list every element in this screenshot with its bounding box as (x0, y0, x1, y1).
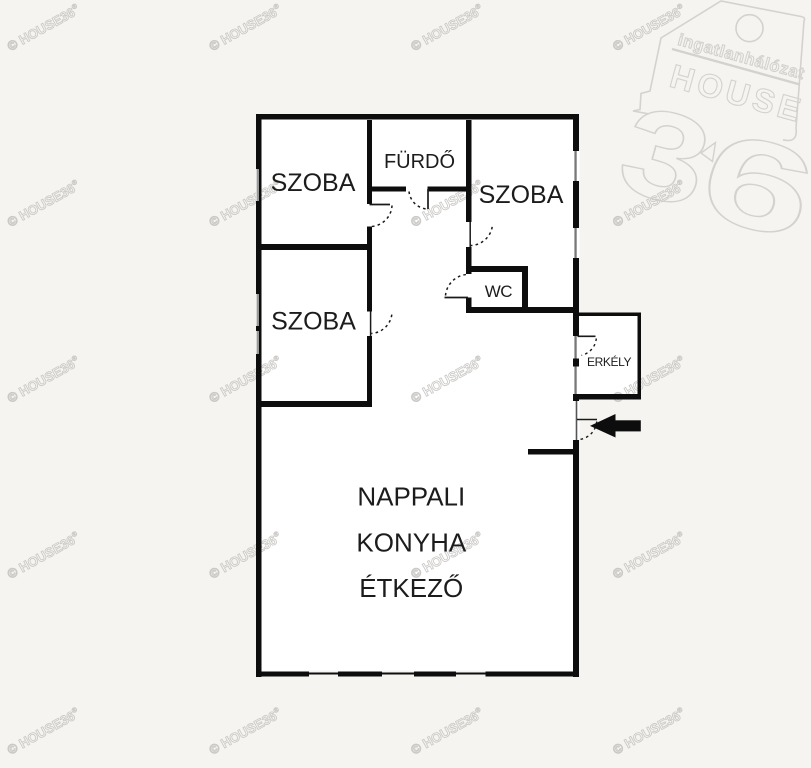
svg-text:ÉTKEZŐ: ÉTKEZŐ (359, 573, 463, 603)
svg-text:NAPPALI: NAPPALI (357, 482, 465, 512)
svg-text:SZOBA: SZOBA (271, 308, 356, 336)
svg-text:SZOBA: SZOBA (271, 169, 356, 197)
svg-text:WC: WC (485, 282, 513, 301)
svg-text:KONYHA: KONYHA (356, 527, 466, 557)
svg-text:ERKÉLY: ERKÉLY (587, 354, 631, 369)
svg-text:SZOBA: SZOBA (479, 181, 564, 209)
svg-text:FÜRDŐ: FÜRDŐ (384, 150, 455, 173)
